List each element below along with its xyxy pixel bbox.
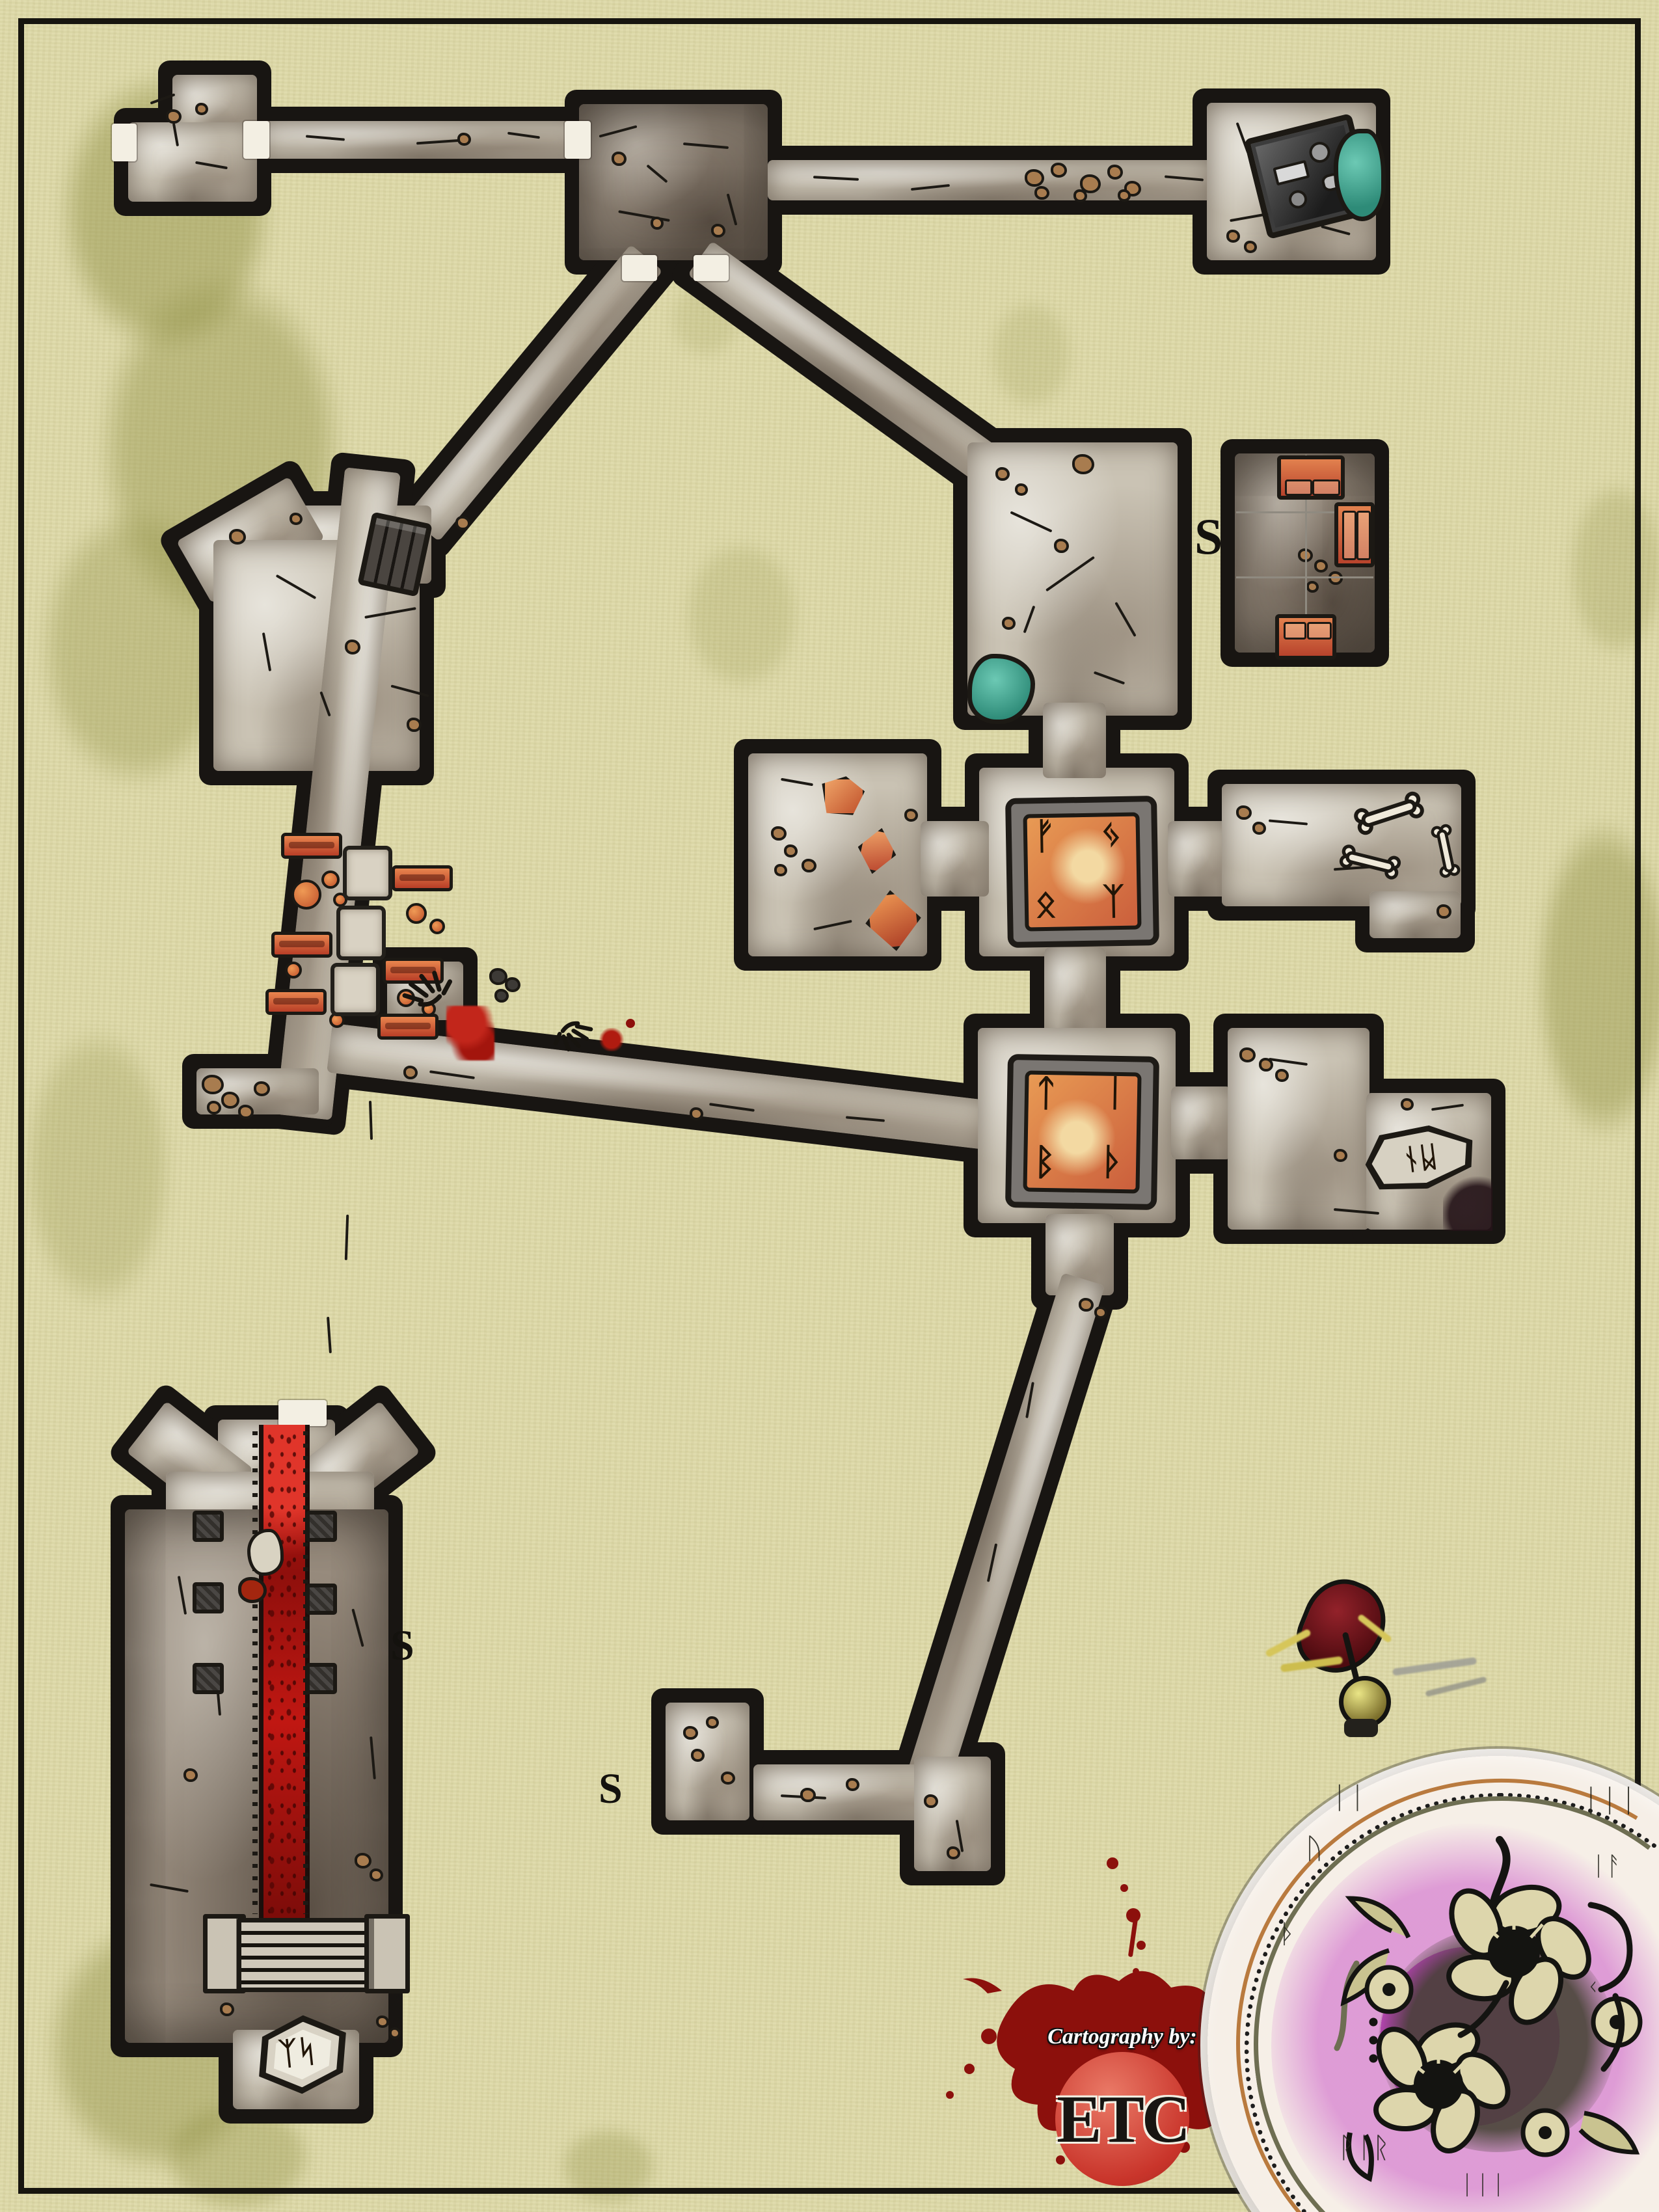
etc-logo: ETC [1055,2052,1189,2186]
medallion-rune: ᚦ [1280,1919,1295,1949]
medallion-rune: ᛁᛁᛁ [1582,1783,1638,1819]
credit-caption: Cartography by: [1015,2025,1230,2049]
medallion-rune: ᛁᛁᛁ [1459,2170,1506,2200]
medallion: ᛁᛁ ᚢ ᚦ ᛁᛁᛁ ᛁᚨ ᚲ ᚱᛁᚱ ᛁᛁᛁ [1200,1749,1659,2212]
decorations: ᛁᛁ ᚢ ᚦ ᛁᛁᛁ ᛁᚨ ᚲ ᚱᛁᚱ ᛁᛁᛁ Cartography by: … [0,0,1659,2212]
etc-logo-text: ETC [1057,2081,1188,2158]
medallion-rune: ᚲ [1585,1973,1600,2001]
medallion-rune: ᛁᚨ [1591,1852,1622,1882]
brush-stroke [1425,1677,1487,1697]
medallion-rune: ᚱᛁᚱ [1338,2131,1390,2165]
dungeon-map: ᚠ ᛃ ᛟ ᛉ ᛏ ᛁ ᛒ ᚦ [0,0,1659,2212]
blood-drips [1093,1848,1184,1991]
brush-stroke [1392,1657,1477,1676]
bail-collar [1344,1719,1378,1737]
credit-block: Cartography by: ETC [1015,2025,1230,2186]
medallion-rune: ᚢ [1306,1832,1323,1865]
medallion-rune: ᛁᛁ [1330,1780,1366,1815]
